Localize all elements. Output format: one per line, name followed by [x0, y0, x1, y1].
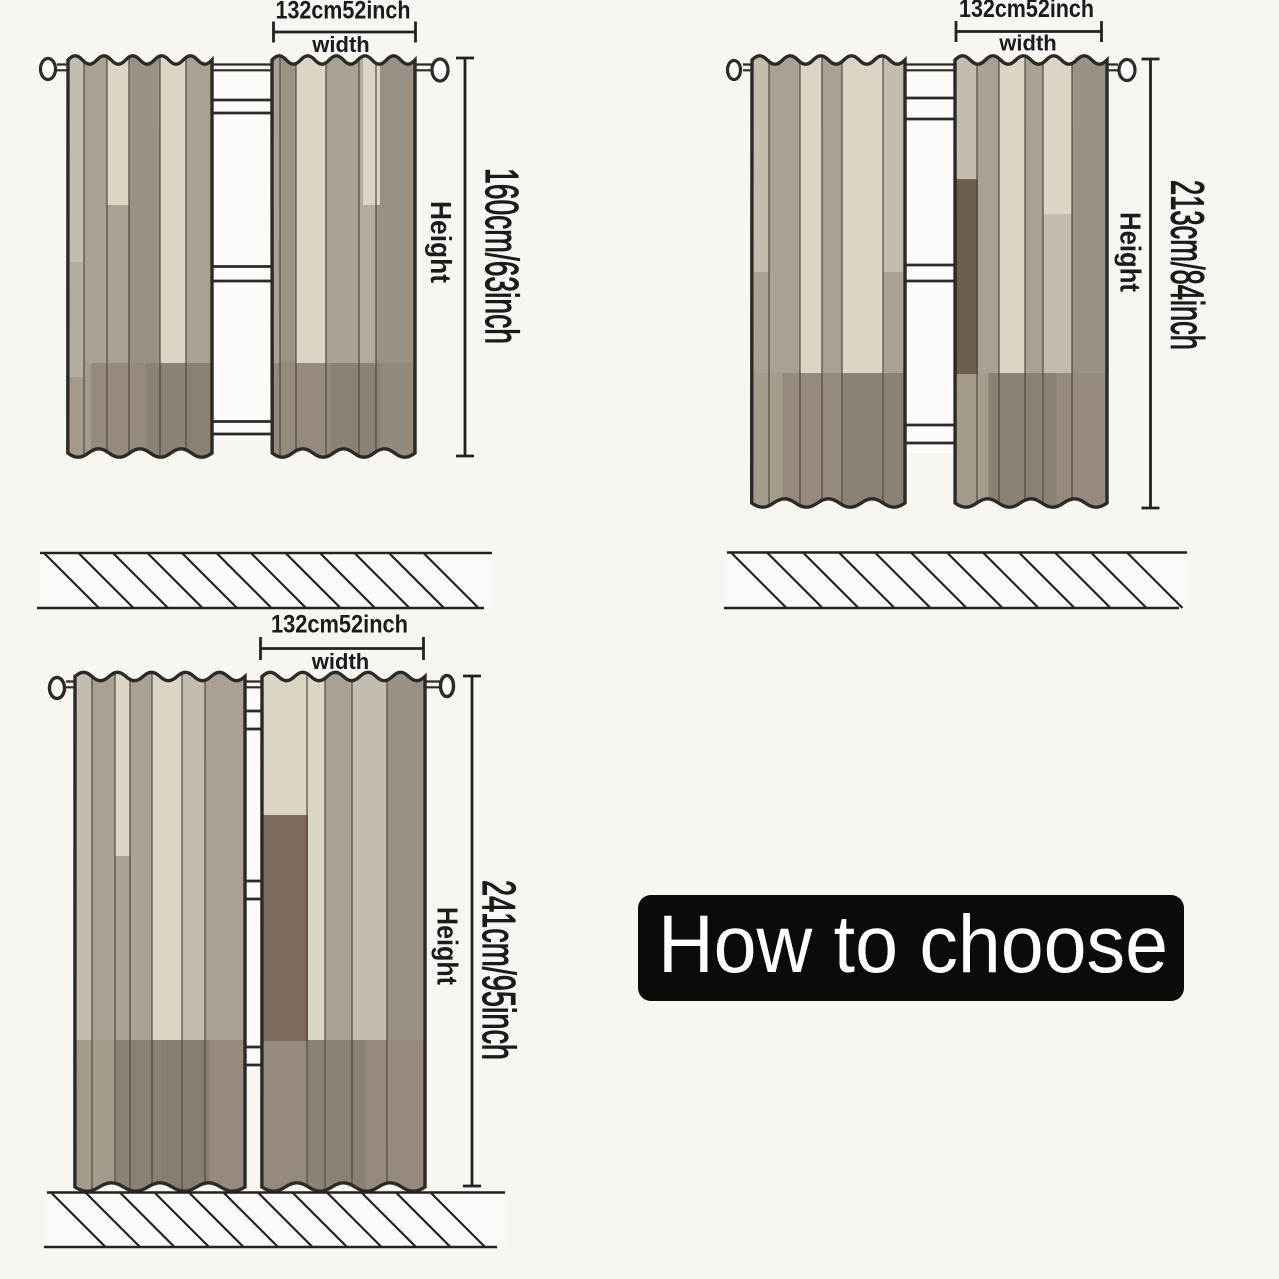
svg-text:132cm52inch: 132cm52inch [271, 611, 408, 639]
svg-text:213cm/84inch: 213cm/84inch [1162, 180, 1214, 350]
svg-text:Height: Height [431, 907, 463, 985]
svg-text:Height: Height [424, 201, 456, 283]
svg-text:width: width [311, 649, 369, 674]
svg-text:Height: Height [1114, 212, 1146, 292]
svg-text:width: width [311, 32, 369, 57]
svg-text:width: width [998, 31, 1056, 56]
svg-text:160cm/63inch: 160cm/63inch [476, 168, 528, 344]
svg-text:241cm/95inch: 241cm/95inch [473, 880, 525, 1060]
svg-text:How to choose: How to choose [658, 899, 1168, 990]
svg-text:132cm52inch: 132cm52inch [959, 0, 1094, 23]
svg-text:132cm52inch: 132cm52inch [276, 0, 411, 25]
